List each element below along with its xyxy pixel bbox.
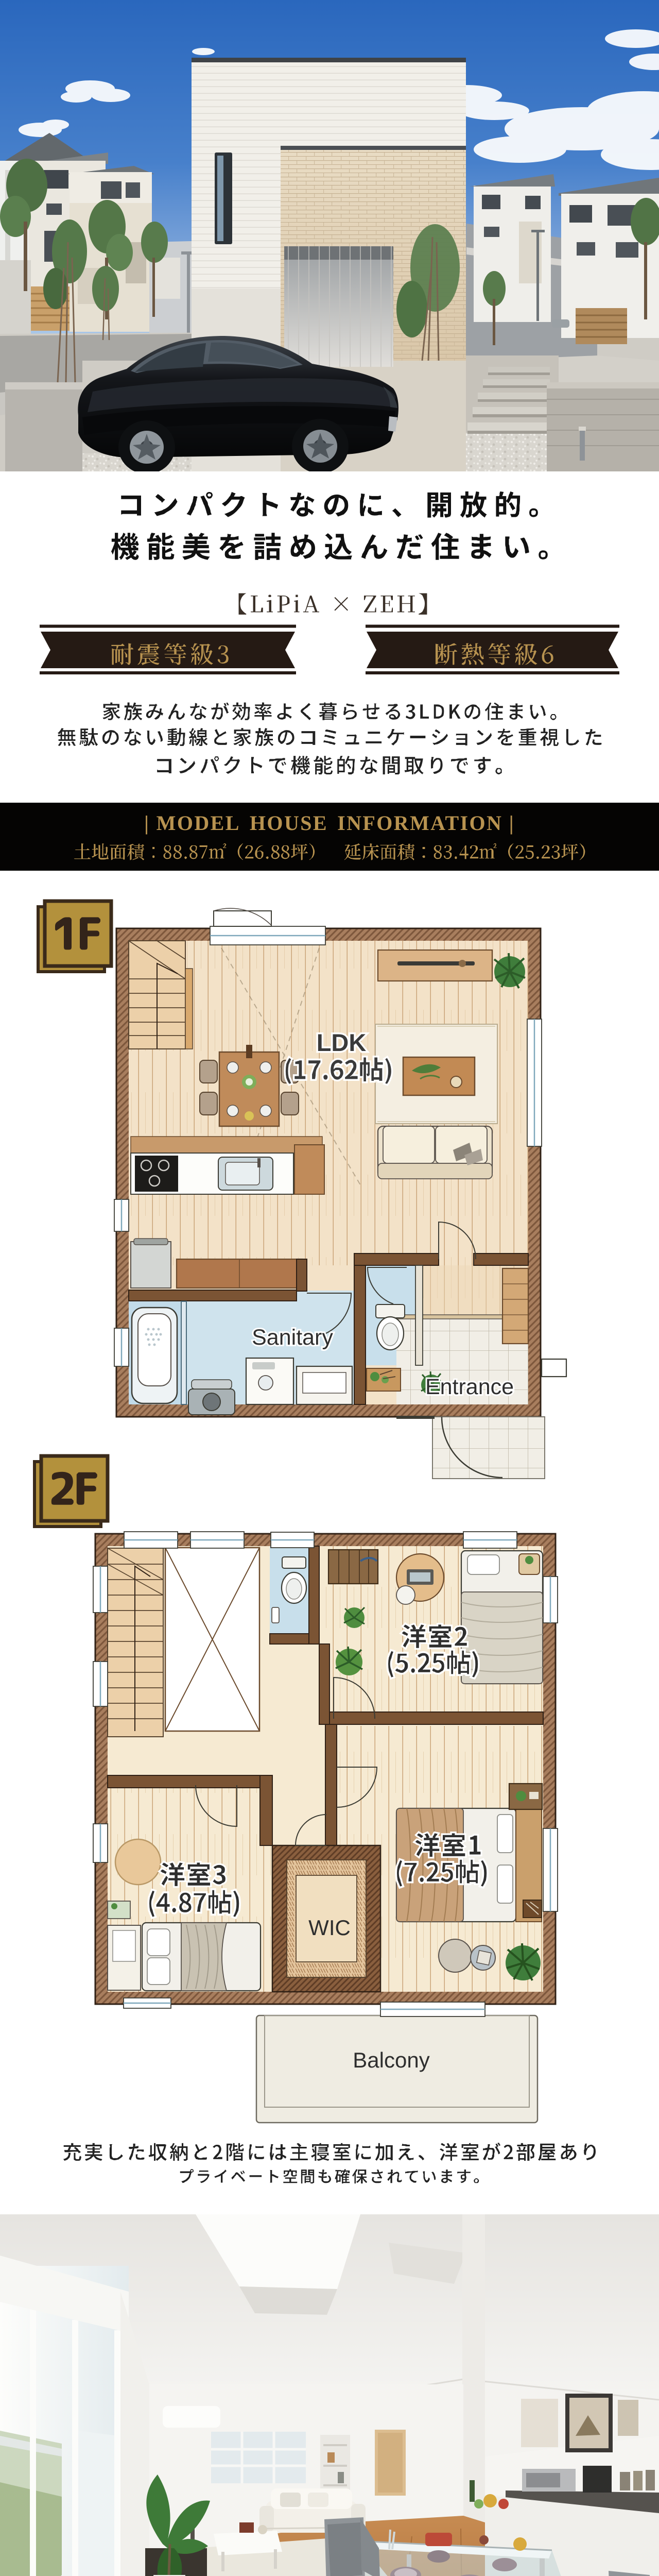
svg-text:WIC: WIC [308,1916,351,1940]
svg-text:Entrance: Entrance [425,1375,514,1399]
svg-text:Sanitary: Sanitary [252,1325,333,1350]
svg-text:Balcony: Balcony [353,2048,429,2072]
svg-text:| MODEL HOUSE INFORMATION |: | MODEL HOUSE INFORMATION | [144,811,515,835]
svg-text:LDK: LDK [317,1029,367,1056]
